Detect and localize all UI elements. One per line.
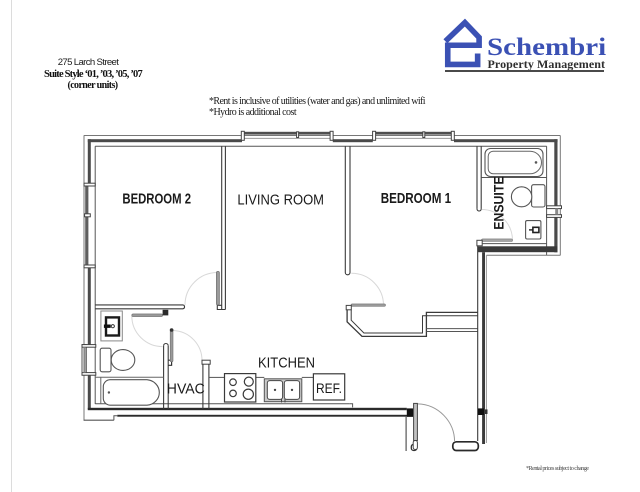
svg-text:LIVING ROOM: LIVING ROOM [237,192,324,209]
svg-text:KITCHEN: KITCHEN [258,355,315,372]
svg-text:BEDROOM 1: BEDROOM 1 [381,190,451,207]
svg-text:REF.: REF. [316,380,342,396]
svg-text:BEDROOM 2: BEDROOM 2 [122,191,191,208]
svg-text:HVAC: HVAC [167,380,205,397]
svg-text:ENSUITE: ENSUITE [492,176,507,229]
